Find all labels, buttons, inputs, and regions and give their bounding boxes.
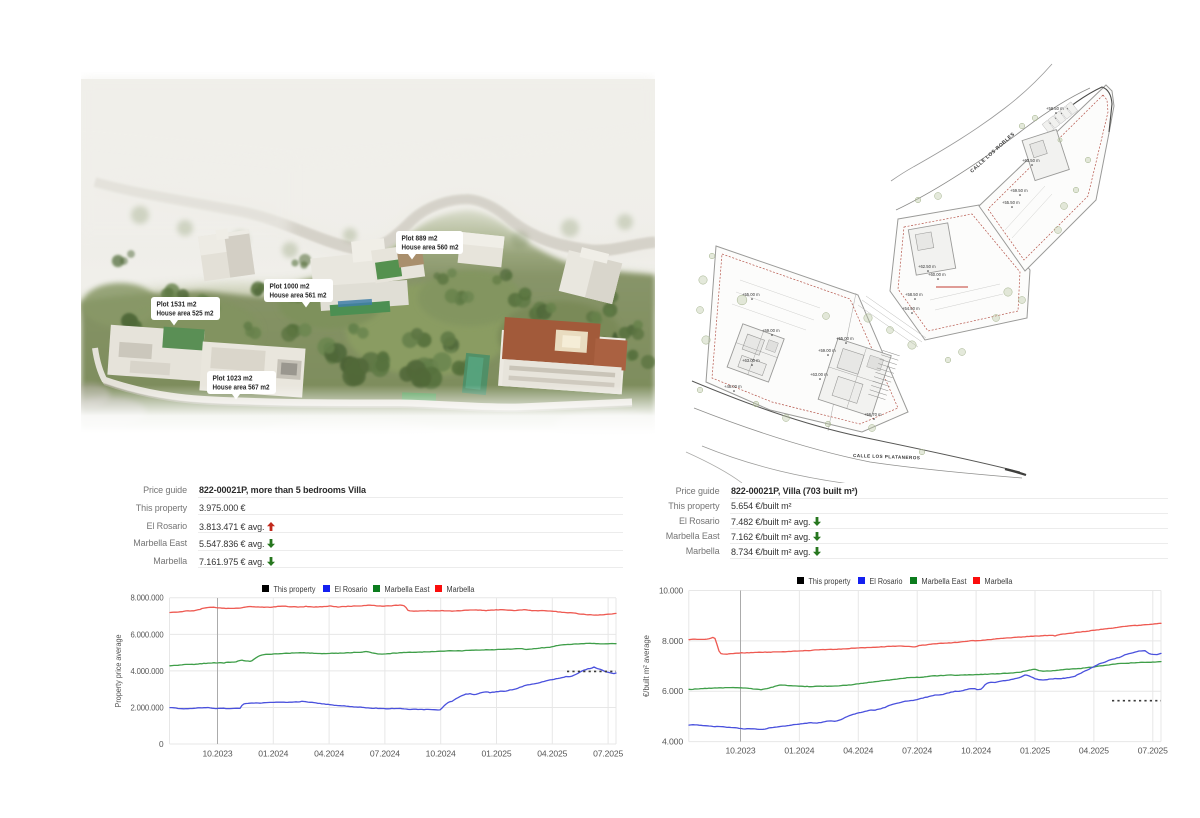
svg-text:+55.00 m: +55.00 m bbox=[742, 292, 760, 297]
svg-text:04.2025: 04.2025 bbox=[1079, 746, 1110, 756]
svg-text:+63.00 m: +63.00 m bbox=[810, 372, 828, 377]
svg-text:House area 525 m2: House area 525 m2 bbox=[157, 309, 214, 318]
svg-text:House area 560 m2: House area 560 m2 bbox=[402, 243, 459, 252]
svg-text:01.2025: 01.2025 bbox=[1020, 746, 1051, 756]
svg-text:+56.70 m: +56.70 m bbox=[864, 412, 882, 417]
svg-text:Marbella East: Marbella East bbox=[385, 584, 431, 594]
svg-text:+63.00 m: +63.00 m bbox=[742, 358, 760, 363]
svg-text:+54.50 m: +54.50 m bbox=[902, 306, 920, 311]
svg-text:6.000: 6.000 bbox=[662, 686, 684, 696]
svg-text:Plot 1000 m2: Plot 1000 m2 bbox=[270, 282, 310, 291]
svg-text:+48.00 m: +48.00 m bbox=[724, 384, 742, 389]
svg-text:07.2025: 07.2025 bbox=[1138, 746, 1169, 756]
svg-text:El Rosario: El Rosario bbox=[335, 584, 368, 594]
svg-text:House area 561 m2: House area 561 m2 bbox=[270, 291, 327, 300]
svg-text:Plot 889 m2: Plot 889 m2 bbox=[402, 234, 438, 243]
svg-text:Property price average: Property price average bbox=[113, 634, 123, 707]
svg-text:6.000.000: 6.000.000 bbox=[131, 629, 164, 639]
svg-text:4.000: 4.000 bbox=[662, 737, 684, 747]
svg-text:+55.50 m: +55.50 m bbox=[1002, 200, 1020, 205]
svg-text:10.2024: 10.2024 bbox=[426, 749, 457, 759]
svg-text:+58.50 m: +58.50 m bbox=[905, 292, 923, 297]
svg-text:04.2024: 04.2024 bbox=[314, 749, 345, 759]
svg-text:+63.50 m: +63.50 m bbox=[1022, 158, 1040, 163]
svg-text:El Rosario: El Rosario bbox=[870, 576, 903, 586]
svg-text:+62.50 m: +62.50 m bbox=[918, 264, 936, 269]
svg-text:01.2024: 01.2024 bbox=[258, 749, 289, 759]
svg-text:Plot 1531 m2: Plot 1531 m2 bbox=[157, 300, 197, 309]
svg-text:8.000.000: 8.000.000 bbox=[131, 593, 164, 603]
svg-text:07.2024: 07.2024 bbox=[370, 749, 401, 759]
svg-text:+58.50 m: +58.50 m bbox=[1046, 106, 1064, 111]
svg-text:Plot 1023 m2: Plot 1023 m2 bbox=[213, 374, 253, 383]
svg-text:CALLE LOS PLATANEROS: CALLE LOS PLATANEROS bbox=[853, 453, 920, 460]
svg-text:+59.00 m: +59.00 m bbox=[762, 328, 780, 333]
svg-text:This property: This property bbox=[809, 576, 852, 586]
svg-text:10.2024: 10.2024 bbox=[961, 746, 992, 756]
svg-text:4.000.000: 4.000.000 bbox=[131, 666, 164, 676]
svg-text:+59.00 m: +59.00 m bbox=[818, 348, 836, 353]
svg-text:+60.00 m: +60.00 m bbox=[928, 272, 946, 277]
svg-text:+59.50 m: +59.50 m bbox=[1010, 188, 1028, 193]
svg-text:04.2024: 04.2024 bbox=[843, 746, 874, 756]
svg-text:€/built m² average: €/built m² average bbox=[641, 635, 651, 697]
svg-text:0: 0 bbox=[159, 739, 164, 749]
svg-text:2.000.000: 2.000.000 bbox=[131, 702, 164, 712]
svg-text:07.2025: 07.2025 bbox=[593, 749, 624, 759]
svg-text:10.2023: 10.2023 bbox=[203, 749, 234, 759]
svg-text:CALLE LOS ROBLES: CALLE LOS ROBLES bbox=[969, 131, 1016, 174]
svg-text:+55.00 m: +55.00 m bbox=[836, 336, 854, 341]
svg-text:07.2024: 07.2024 bbox=[902, 746, 933, 756]
svg-text:01.2024: 01.2024 bbox=[784, 746, 815, 756]
svg-text:Marbella: Marbella bbox=[447, 584, 475, 594]
svg-text:01.2025: 01.2025 bbox=[482, 749, 513, 759]
svg-text:House area 567 m2: House area 567 m2 bbox=[213, 383, 270, 392]
svg-text:10.2023: 10.2023 bbox=[726, 746, 757, 756]
svg-text:Marbella: Marbella bbox=[985, 576, 1013, 586]
svg-text:Marbella East: Marbella East bbox=[922, 576, 968, 586]
svg-text:04.2025: 04.2025 bbox=[537, 749, 568, 759]
svg-text:10.000: 10.000 bbox=[659, 585, 684, 595]
svg-text:This property: This property bbox=[274, 584, 317, 594]
svg-text:8.000: 8.000 bbox=[662, 636, 684, 646]
